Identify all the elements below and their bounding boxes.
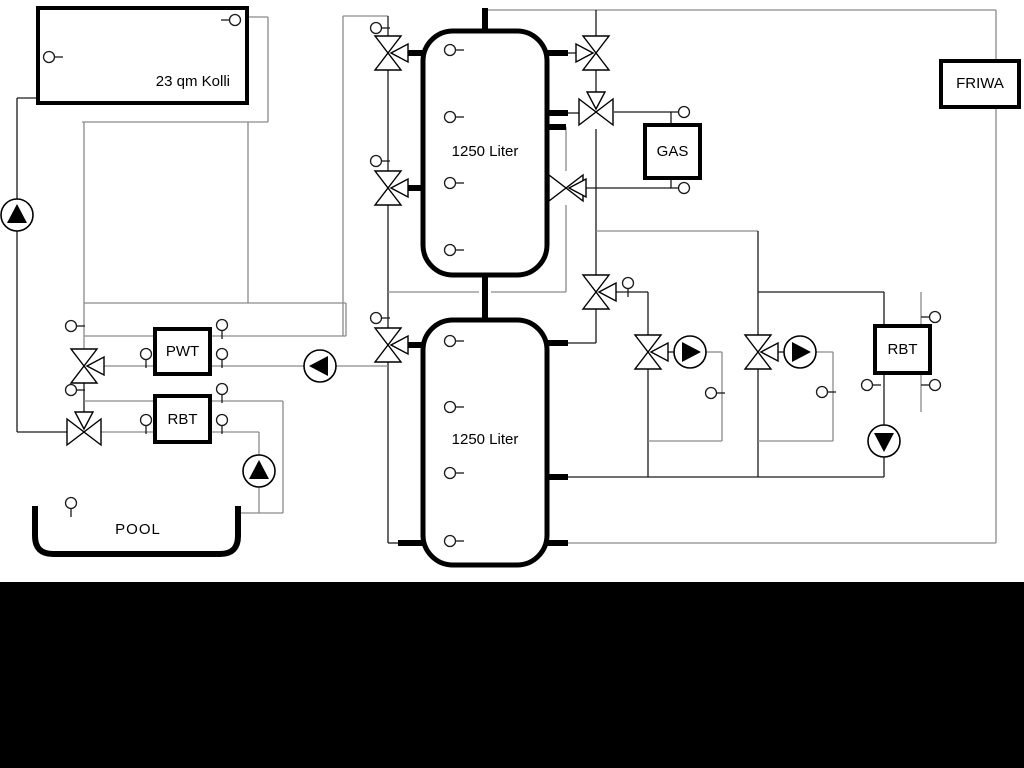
temperature-sensor	[217, 415, 228, 435]
sensor-bulb-icon	[141, 349, 152, 360]
sensor-bulb-icon	[217, 415, 228, 426]
temperature-sensor	[141, 415, 152, 435]
sensor-bulb-icon	[371, 313, 382, 324]
gas-label: GAS	[645, 144, 700, 159]
three-way-valve	[67, 412, 101, 445]
temperature-sensor	[66, 498, 77, 518]
sensor-bulb-icon	[66, 321, 77, 332]
hydraulic-schematic-screen: { "diagram": { "labels": { "collector": …	[0, 0, 1024, 768]
collector-label: 23 qm Kolli	[90, 74, 230, 89]
sensor-bulb-icon	[445, 536, 456, 547]
three-way-valve	[576, 36, 609, 70]
sensor-bulb-icon	[445, 112, 456, 123]
temperature-sensor	[670, 107, 690, 118]
temperature-sensor	[217, 384, 228, 404]
sensor-bulb-icon	[862, 380, 873, 391]
pump-up	[243, 455, 275, 487]
temperature-sensor	[371, 156, 391, 167]
three-way-valve	[71, 349, 104, 383]
sensor-bulb-icon	[66, 385, 77, 396]
sensor-bulb-icon	[217, 320, 228, 331]
sensor-bulb-icon	[445, 468, 456, 479]
tank2-label: 1250 Liter	[423, 432, 547, 447]
three-way-valve	[375, 36, 408, 70]
temperature-sensor	[862, 380, 882, 391]
sensor-bulb-icon	[371, 23, 382, 34]
pump-left	[304, 350, 336, 382]
three-way-valve	[579, 92, 613, 125]
sensor-bulb-icon	[623, 278, 634, 289]
sensor-bulb-icon	[679, 183, 690, 194]
sensor-bulb-icon	[66, 498, 77, 509]
sensor-bulb-icon	[230, 15, 241, 26]
three-way-valve	[375, 171, 408, 205]
sensor-bulb-icon	[371, 156, 382, 167]
rbt-right-label: RBT	[875, 342, 930, 357]
sensor-bulb-icon	[445, 178, 456, 189]
sensor-bulb-icon	[445, 402, 456, 413]
sensor-bulb-icon	[930, 312, 941, 323]
temperature-sensor	[371, 23, 391, 34]
three-way-valve	[745, 335, 778, 369]
temperature-sensor	[670, 183, 690, 194]
temperature-sensor	[66, 321, 86, 332]
pool-label: POOL	[78, 522, 198, 537]
sensor-bulb-icon	[679, 107, 690, 118]
temperature-sensor	[66, 385, 86, 396]
three-way-valve	[375, 328, 408, 362]
valve-triangle	[549, 175, 566, 201]
bottom-black-bar	[0, 582, 1024, 768]
temperature-sensor	[217, 349, 228, 369]
friwa-label: FRIWA	[941, 76, 1019, 91]
sensor-bulb-icon	[217, 384, 228, 395]
sensor-bulb-icon	[817, 387, 828, 398]
sensor-bulb-icon	[445, 45, 456, 56]
tank1-label: 1250 Liter	[423, 144, 547, 159]
sensor-bulb-icon	[44, 52, 55, 63]
pump-up	[1, 199, 33, 231]
three-way-valve	[635, 335, 668, 369]
temperature-sensor	[141, 349, 152, 369]
pump-down	[868, 425, 900, 457]
temperature-sensor	[371, 313, 391, 324]
sensor-bulb-icon	[445, 336, 456, 347]
temperature-sensor	[623, 278, 634, 298]
three-way-valve	[583, 275, 616, 309]
pwt-label: PWT	[155, 344, 210, 359]
temperature-sensor	[921, 380, 941, 391]
rbt-left-label: RBT	[155, 412, 210, 427]
temperature-sensor	[921, 312, 941, 323]
pump-right	[674, 336, 706, 368]
sensor-bulb-icon	[930, 380, 941, 391]
sensor-bulb-icon	[706, 388, 717, 399]
pump-right	[784, 336, 816, 368]
sensor-bulb-icon	[445, 245, 456, 256]
three-way-valve	[549, 175, 586, 201]
sensor-bulb-icon	[217, 349, 228, 360]
sensor-bulb-icon	[141, 415, 152, 426]
